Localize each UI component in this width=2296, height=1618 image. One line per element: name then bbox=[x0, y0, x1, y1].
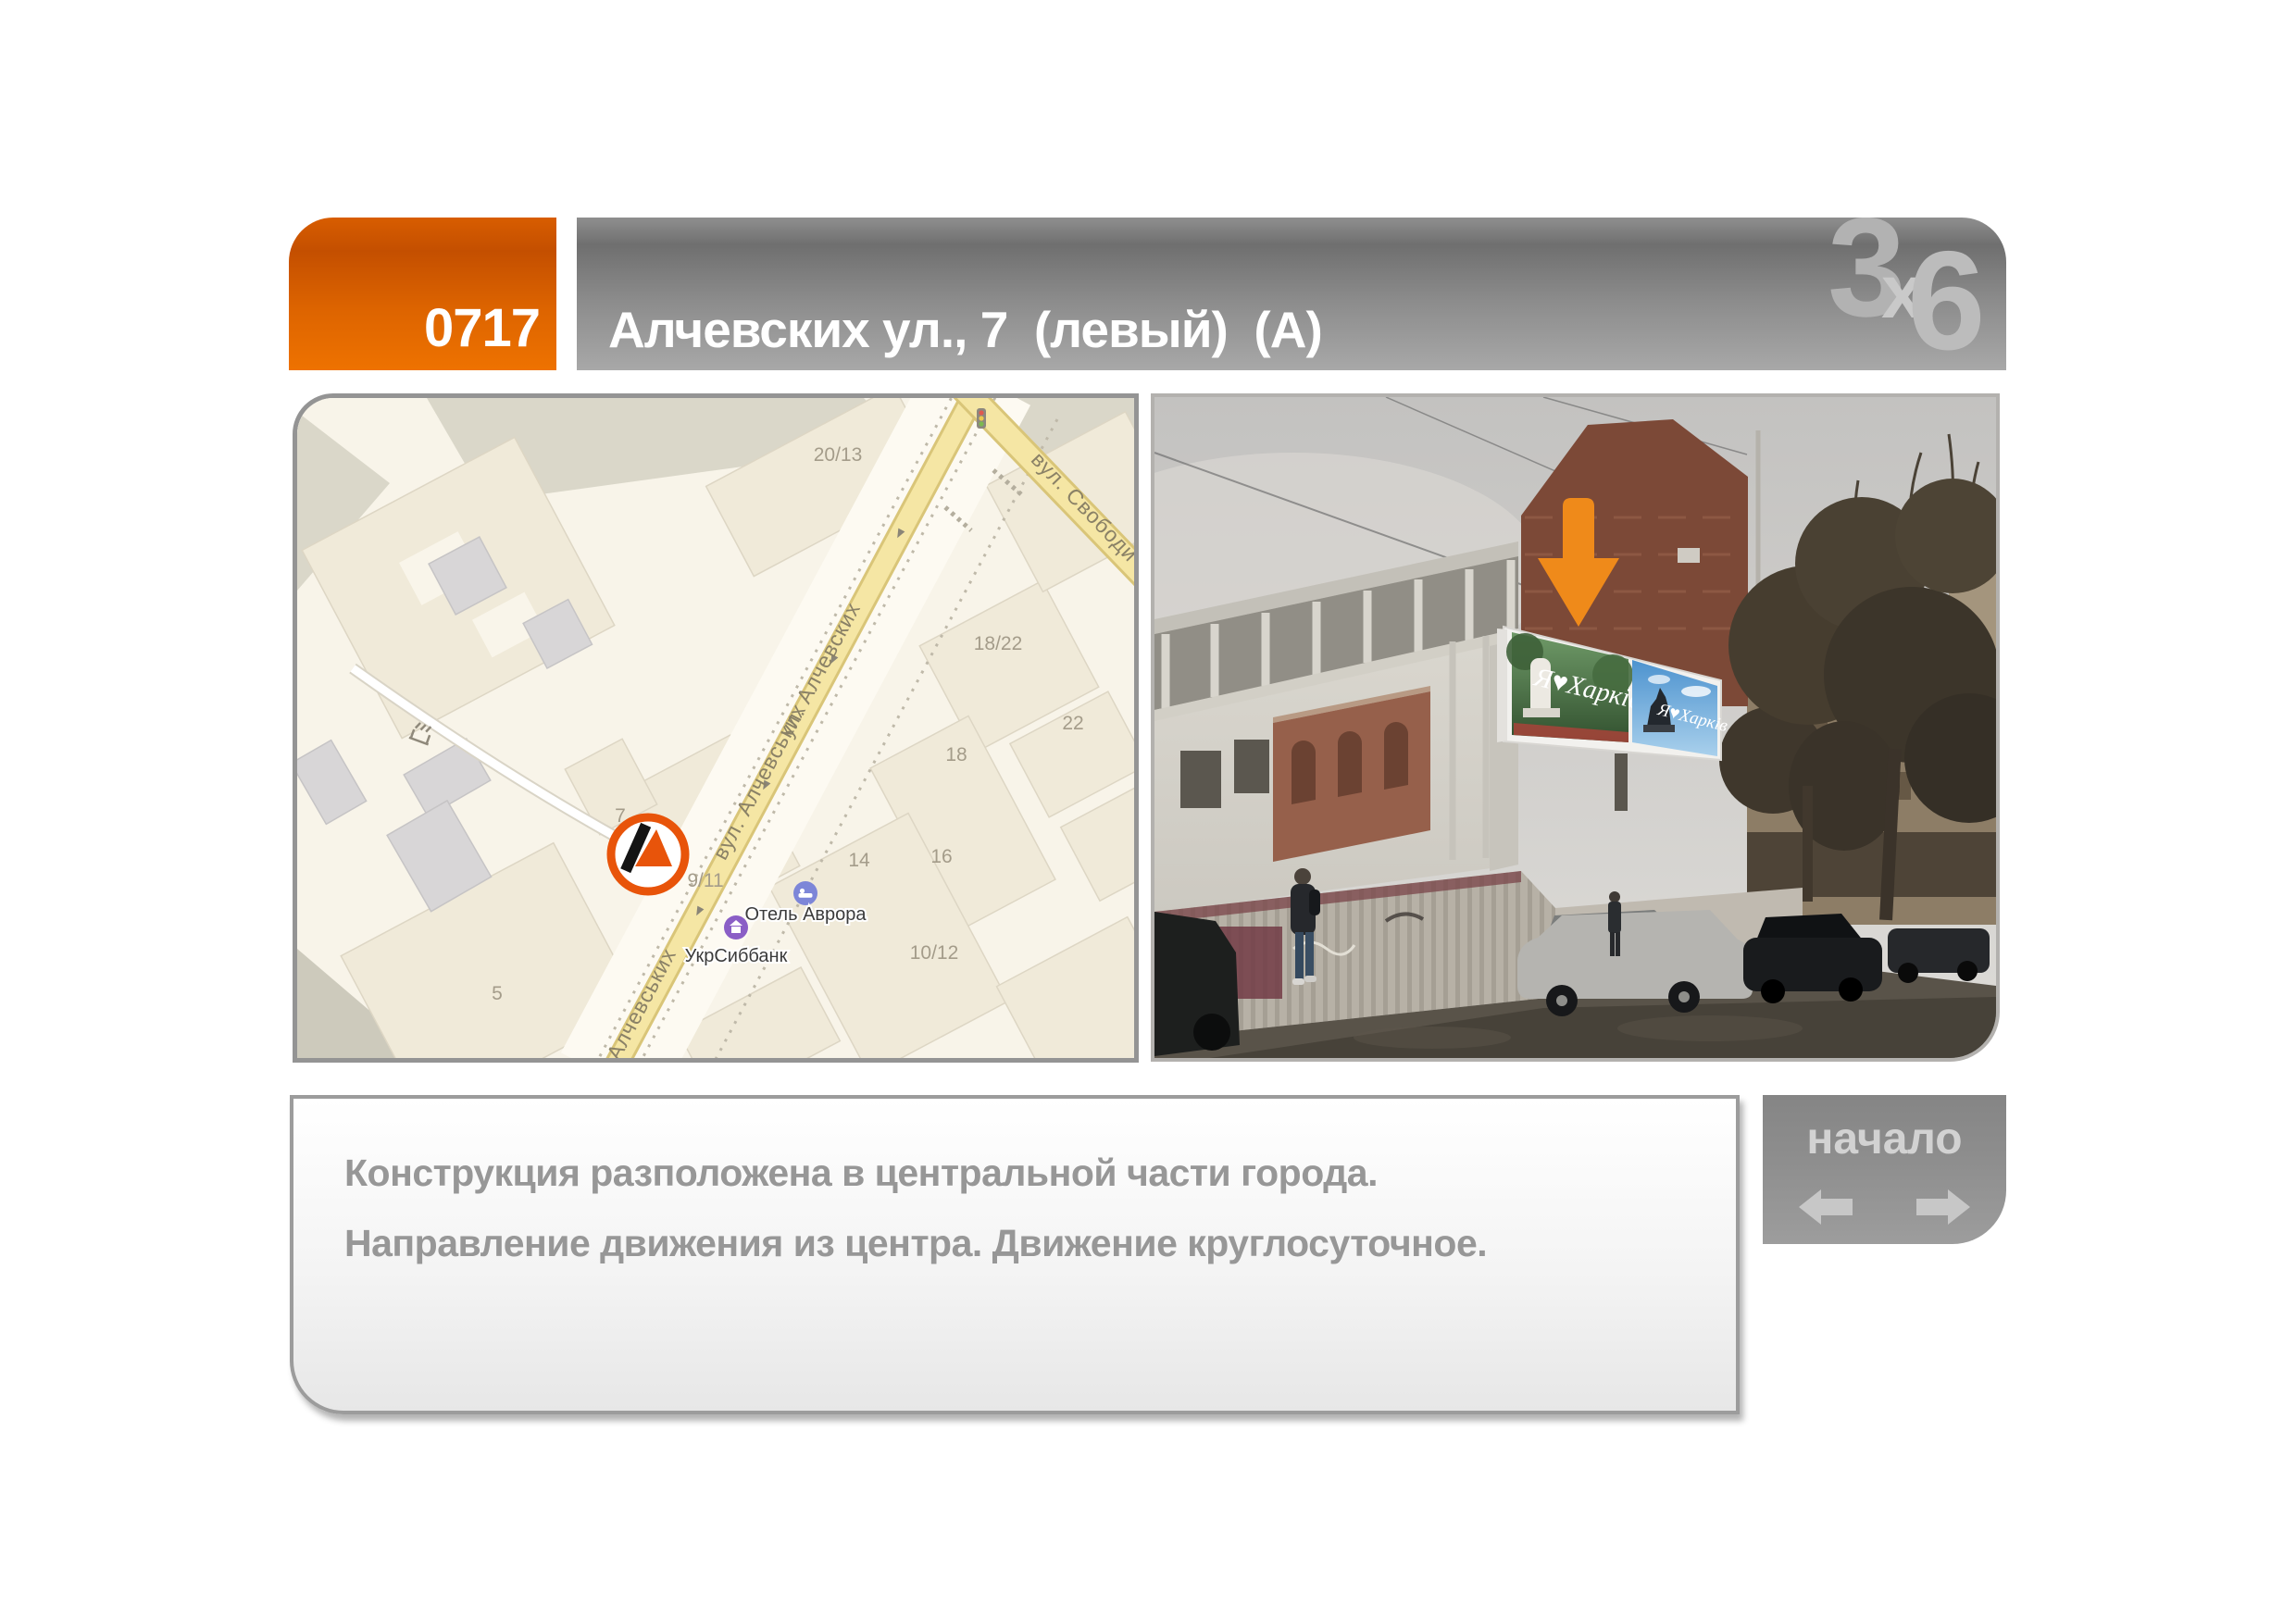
house-number: 18 bbox=[945, 744, 967, 765]
logo-digit-3: 3 bbox=[1828, 218, 1905, 338]
page-title: Алчевских ул., 7 (левый) (А) bbox=[608, 300, 1322, 359]
location-photo-panel: Я♥Харків Я♥Харків bbox=[1151, 393, 2000, 1062]
location-map: 20/1318/222218169/11714510/12 вул. Свобо… bbox=[297, 398, 1134, 1058]
house-number: 5 bbox=[492, 983, 503, 1004]
house-number: 7 bbox=[615, 805, 626, 827]
nav-prev-arrow-icon[interactable] bbox=[1799, 1189, 1853, 1225]
house-number: 22 bbox=[1062, 713, 1083, 734]
house-number: 10/12 bbox=[910, 942, 959, 964]
logo-digit-6: 6 bbox=[1907, 230, 1985, 370]
traffic-light-icon bbox=[977, 408, 986, 429]
description-line: Направление движения из центра. Движение… bbox=[344, 1208, 1685, 1278]
board-id-badge: 0717 bbox=[289, 218, 556, 370]
nav-start-label: начало bbox=[1763, 1114, 2006, 1164]
hotel-poi-icon bbox=[793, 881, 817, 905]
house-number: 14 bbox=[848, 850, 870, 871]
house-number: 20/13 bbox=[814, 444, 863, 466]
description-line: Конструкция разположена в центральной ча… bbox=[344, 1138, 1685, 1208]
description-box: Конструкция разположена в центральной ча… bbox=[290, 1095, 1740, 1414]
nav-next-arrow-icon[interactable] bbox=[1916, 1189, 1970, 1225]
house-number: 18/22 bbox=[974, 633, 1023, 654]
house-number: 9/11 bbox=[687, 870, 723, 891]
billboard-marker-icon bbox=[611, 817, 685, 891]
board-id-text: 0717 bbox=[424, 297, 540, 359]
logo-letter-x: х bbox=[1881, 255, 1923, 330]
nav-start-button[interactable]: начало bbox=[1763, 1095, 2006, 1244]
poi-label: Отель Аврора bbox=[744, 904, 867, 925]
poi-label: УкрСиббанк bbox=[685, 946, 788, 966]
location-map-panel: 20/1318/222218169/11714510/12 вул. Свобо… bbox=[293, 393, 1139, 1063]
location-photo: Я♥Харків Я♥Харків bbox=[1154, 397, 1996, 1058]
3x6-logo: 3 х 6 bbox=[1828, 218, 1999, 370]
title-bar: Алчевских ул., 7 (левый) (А) 3 х 6 bbox=[577, 218, 2006, 370]
billboard-pole bbox=[1615, 753, 1628, 811]
house-number: 16 bbox=[930, 846, 952, 867]
